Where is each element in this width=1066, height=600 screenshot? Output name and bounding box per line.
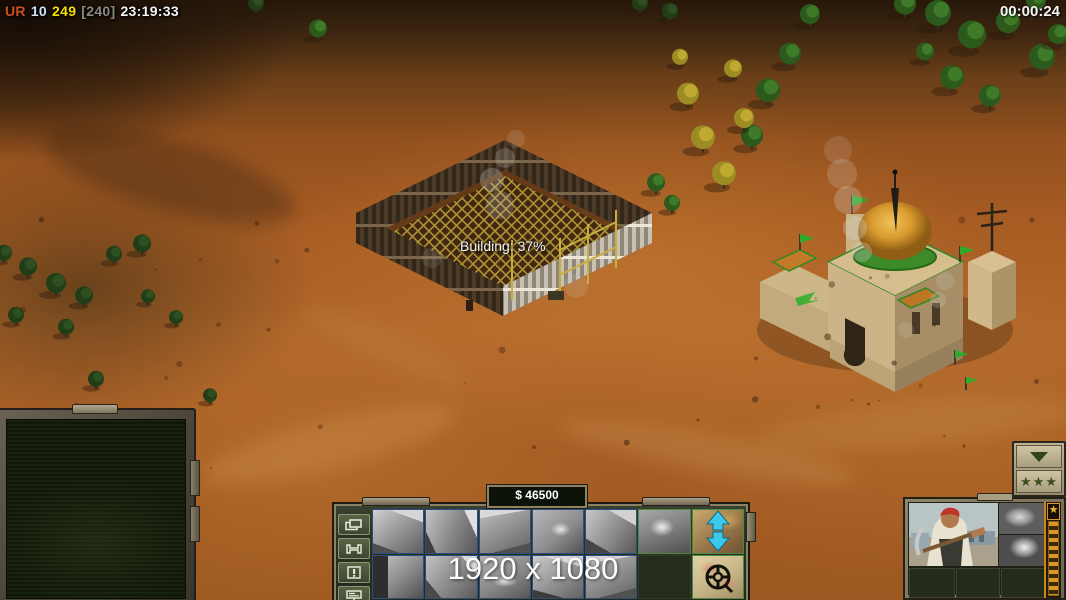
game-screen: UR10249[240]23:19:33 00:00:24 Building: … (0, 0, 1066, 600)
minimap-frame-notch (190, 460, 200, 496)
upgrade-boots-thumb (999, 503, 1045, 534)
promotion-rank-button[interactable]: ★★★ (1016, 470, 1062, 493)
mosque[interactable] (757, 136, 1016, 392)
build-option-3[interactable] (479, 509, 531, 554)
mission-timer: 00:00:24 (1000, 3, 1060, 20)
supply-vehicle[interactable] (548, 291, 564, 300)
score-num2: 249 (52, 3, 76, 19)
unit-panel-tab (977, 493, 1013, 501)
build-option-10[interactable] (532, 555, 584, 600)
billboard-icon (345, 590, 363, 600)
awning-left (773, 250, 816, 271)
worker-unit[interactable] (466, 300, 473, 311)
minimap-frame-notch (190, 506, 200, 542)
wrench-button[interactable] (338, 538, 370, 559)
alert-button[interactable] (338, 562, 370, 583)
build-grid (372, 509, 744, 599)
layers-icon (345, 519, 363, 531)
faction-tag: UR (5, 3, 26, 19)
command-side-buttons (338, 514, 370, 600)
minimap[interactable] (6, 419, 186, 599)
up-down-arrows-icon (693, 510, 743, 553)
build-option-6[interactable] (638, 509, 690, 554)
upgrade-attack-thumb (999, 535, 1045, 566)
unit-info-panel: ★ (903, 497, 1066, 600)
layers-button[interactable] (338, 514, 370, 535)
tunnel-updown-button[interactable] (692, 509, 744, 554)
build-option-9[interactable] (479, 555, 531, 600)
score-clock: 23:19:33 (120, 3, 178, 19)
antenna-cross (977, 203, 1007, 251)
commandbar-top-tab (362, 497, 430, 506)
empty-unit-slot (1001, 568, 1045, 598)
build-option-11[interactable] (585, 555, 637, 600)
build-option-1[interactable] (372, 509, 424, 554)
build-option-4[interactable] (532, 509, 584, 554)
command-bar (332, 502, 750, 600)
money-display: $ 46500 (487, 485, 587, 508)
score-readout: UR10249[240]23:19:33 (5, 3, 184, 19)
building-progress-label: Building: 37% (460, 238, 546, 254)
empty-unit-slot (956, 568, 1000, 598)
veterancy-strip: ★ (1044, 502, 1061, 598)
star-icon: ★ (1047, 503, 1060, 520)
commandbar-top-tab (642, 497, 710, 506)
wrench-icon (345, 544, 363, 554)
build-option-2[interactable] (425, 509, 477, 554)
promotion-panel: ★★★ (1012, 441, 1066, 497)
empty-slot (638, 555, 690, 600)
minimap-tab (72, 404, 118, 414)
minimap-panel (0, 408, 196, 600)
empty-unit-slot (909, 568, 955, 598)
exclamation-icon (347, 566, 361, 579)
sign-button[interactable] (338, 586, 370, 600)
radar-map-button[interactable] (692, 555, 744, 600)
down-arrow-icon (1030, 452, 1048, 462)
construction-site[interactable] (356, 130, 652, 316)
veterancy-ladder (1048, 521, 1059, 596)
score-num1: 10 (31, 3, 47, 19)
commandbar-side-tab (746, 512, 756, 542)
map-magnifier-icon (693, 556, 743, 599)
rank-stars-icon: ★★★ (1020, 475, 1058, 488)
promotion-collapse-button[interactable] (1016, 445, 1062, 468)
build-option-5[interactable] (585, 509, 637, 554)
score-bracket: [240] (81, 3, 115, 19)
unit-portrait-worker[interactable] (909, 503, 998, 566)
build-option-8[interactable] (425, 555, 477, 600)
build-option-7[interactable] (372, 555, 424, 600)
